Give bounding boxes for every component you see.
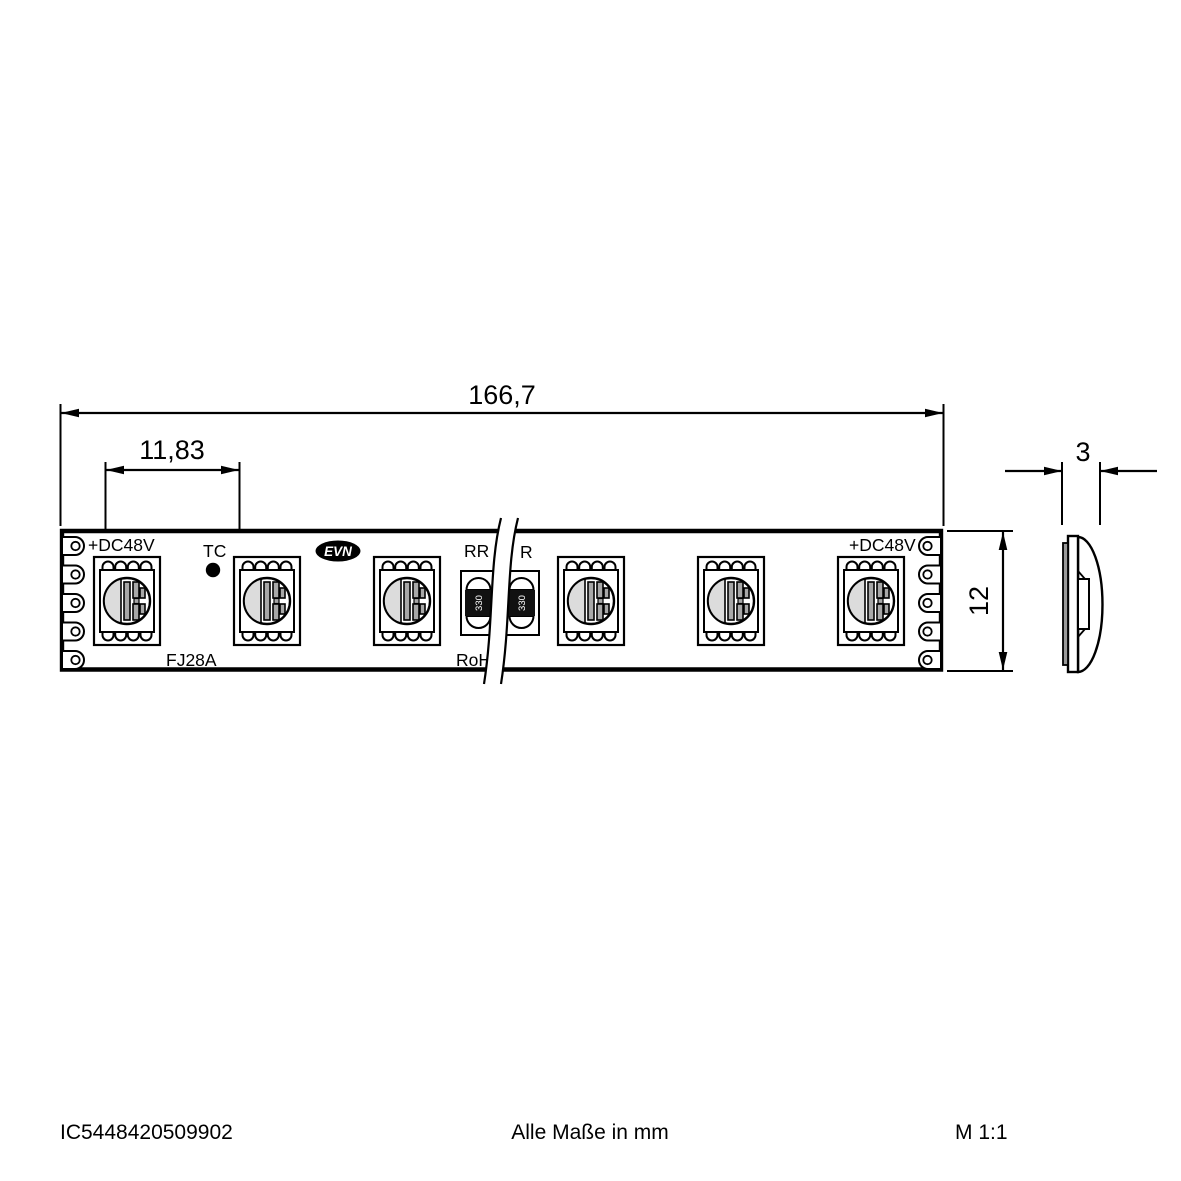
label-type-fj28a: FJ28A [166, 650, 217, 670]
led-module [374, 557, 440, 645]
led-pitch-value: 11,83 [139, 435, 205, 465]
solder-pad [62, 594, 84, 612]
solder-pad [62, 623, 84, 641]
solder-pad [919, 537, 941, 555]
solder-pad [62, 566, 84, 584]
led-module [94, 557, 160, 645]
label-r-right: R [520, 542, 533, 562]
led-strip-top-view: EVN +DC48V TC FJ28A RR RoH R +DC48V [58, 518, 945, 684]
label-rr: RR [464, 541, 489, 561]
tc-test-point [206, 563, 220, 577]
arrow-left-icon [61, 409, 79, 418]
arrow-up-icon [999, 532, 1008, 550]
strip-height-value: 12 [964, 586, 994, 616]
label-dc48v-left: +DC48V [88, 535, 155, 555]
led-module [838, 557, 904, 645]
article-number: IC5448420509902 [60, 1121, 233, 1144]
pcb-back-layer [1063, 543, 1068, 665]
solder-pad [919, 594, 941, 612]
solder-pad [919, 566, 941, 584]
arrow-left-icon [1100, 467, 1118, 476]
arrow-down-icon [999, 652, 1008, 670]
label-tc: TC [203, 541, 226, 561]
units-note: Alle Maße in mm [511, 1121, 669, 1144]
led-module [558, 557, 624, 645]
dimension-led-pitch: 11,83 [106, 435, 240, 529]
evn-logo: EVN [316, 541, 361, 562]
dimension-strip-height: 12 [947, 531, 1013, 671]
thickness-value: 3 [1075, 437, 1090, 467]
solder-pad [62, 537, 84, 555]
arrow-right-icon [1044, 467, 1062, 476]
footer: IC5448420509902 Alle Maße in mm M 1:1 [60, 1121, 1008, 1144]
arrow-right-icon [221, 466, 239, 475]
led-profile [1078, 579, 1089, 629]
arrow-right-icon [925, 409, 943, 418]
solder-pad [919, 651, 941, 669]
cross-section-view [1063, 536, 1102, 672]
scale-note: M 1:1 [955, 1121, 1008, 1144]
drawing-svg: 330 166,7 11,83 [0, 0, 1181, 1181]
arrow-left-icon [106, 466, 124, 475]
pcb-profile [1068, 536, 1078, 672]
led-module [234, 557, 300, 645]
technical-drawing-page: 330 166,7 11,83 [0, 0, 1181, 1181]
led-module [698, 557, 764, 645]
dimension-thickness: 3 [1005, 437, 1157, 525]
solder-pad [919, 623, 941, 641]
evn-logo-text: EVN [324, 544, 352, 559]
solder-pad [62, 651, 84, 669]
overall-length-value: 166,7 [468, 380, 536, 410]
label-dc48v-right: +DC48V [849, 535, 916, 555]
